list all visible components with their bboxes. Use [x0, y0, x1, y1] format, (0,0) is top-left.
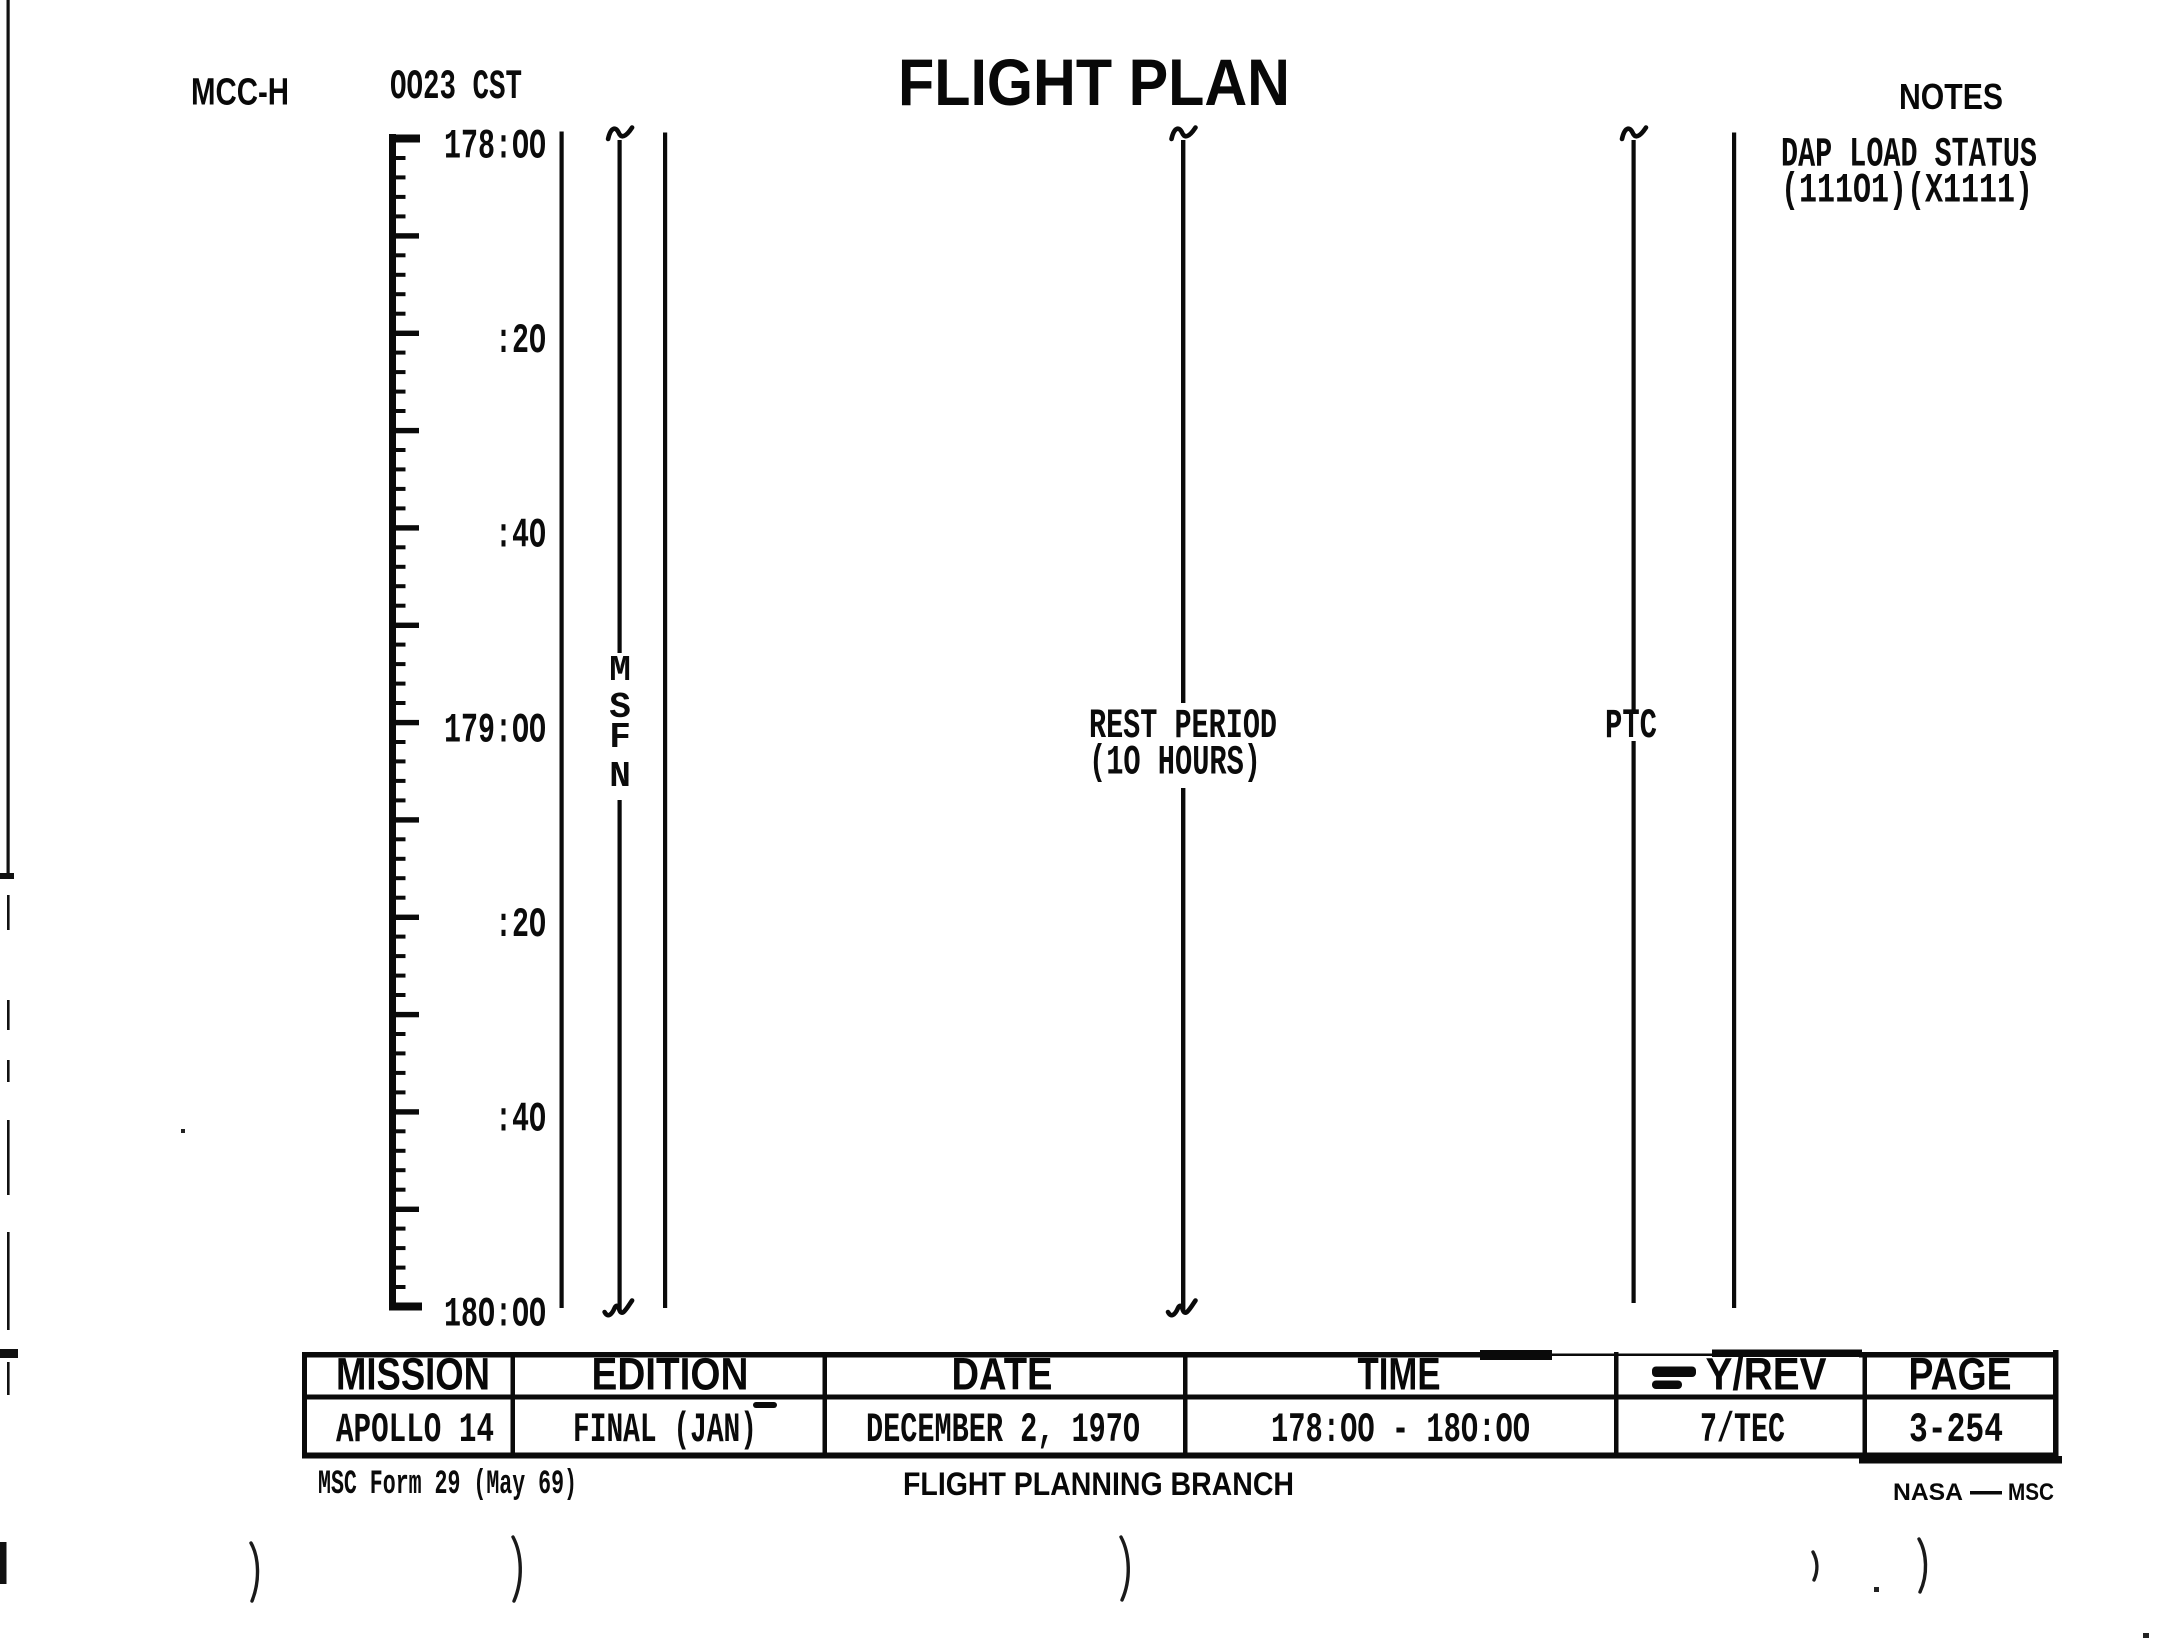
- svg-text:N: N: [609, 756, 631, 797]
- svg-text:FINAL (JAN): FINAL (JAN): [573, 1406, 757, 1454]
- svg-text:EDITION: EDITION: [592, 1349, 749, 1400]
- svg-text:PTC: PTC: [1605, 702, 1657, 750]
- svg-text:PAGE: PAGE: [1909, 1349, 2012, 1400]
- svg-text:(1O HOURS): (1O HOURS): [1089, 739, 1261, 787]
- svg-text:Y/REV: Y/REV: [1706, 1349, 1827, 1400]
- svg-text:178:OO: 178:OO: [444, 122, 546, 170]
- svg-text:FLIGHT PLANNING BRANCH: FLIGHT PLANNING BRANCH: [903, 1466, 1294, 1502]
- svg-text:DECEMBER 2, 197O: DECEMBER 2, 197O: [866, 1406, 1140, 1454]
- svg-text:MSC: MSC: [2008, 1479, 2054, 1506]
- svg-text::2O: :2O: [495, 317, 546, 365]
- svg-text:NOTES: NOTES: [1899, 76, 2003, 117]
- svg-text:178:OO - 18O:OO: 178:OO - 18O:OO: [1271, 1406, 1530, 1454]
- svg-text:MSC Form 29 (May 69): MSC Form 29 (May 69): [318, 1466, 577, 1504]
- svg-text:TIME: TIME: [1358, 1349, 1441, 1400]
- svg-text:NASA: NASA: [1893, 1479, 1963, 1506]
- svg-text:MISSION: MISSION: [336, 1349, 490, 1400]
- svg-text::4O: :4O: [495, 1096, 546, 1144]
- svg-text:APOLLO 14: APOLLO 14: [336, 1406, 494, 1454]
- svg-text:179:OO: 179:OO: [444, 706, 546, 754]
- svg-text:(111O1)(X1111): (111O1)(X1111): [1781, 167, 2033, 215]
- svg-text::2O: :2O: [495, 901, 546, 949]
- svg-text:7/TEC: 7/TEC: [1700, 1406, 1785, 1454]
- svg-text:3-254: 3-254: [1909, 1406, 2003, 1454]
- svg-text:M: M: [609, 650, 631, 691]
- svg-text:18O:OO: 18O:OO: [444, 1290, 546, 1338]
- svg-text:DATE: DATE: [952, 1349, 1053, 1400]
- svg-text:FLIGHT PLAN: FLIGHT PLAN: [898, 45, 1290, 119]
- svg-text:F: F: [609, 717, 631, 758]
- svg-text::4O: :4O: [495, 512, 546, 560]
- svg-text:MCC-H: MCC-H: [191, 72, 289, 114]
- svg-text:OO23 CST: OO23 CST: [390, 63, 522, 111]
